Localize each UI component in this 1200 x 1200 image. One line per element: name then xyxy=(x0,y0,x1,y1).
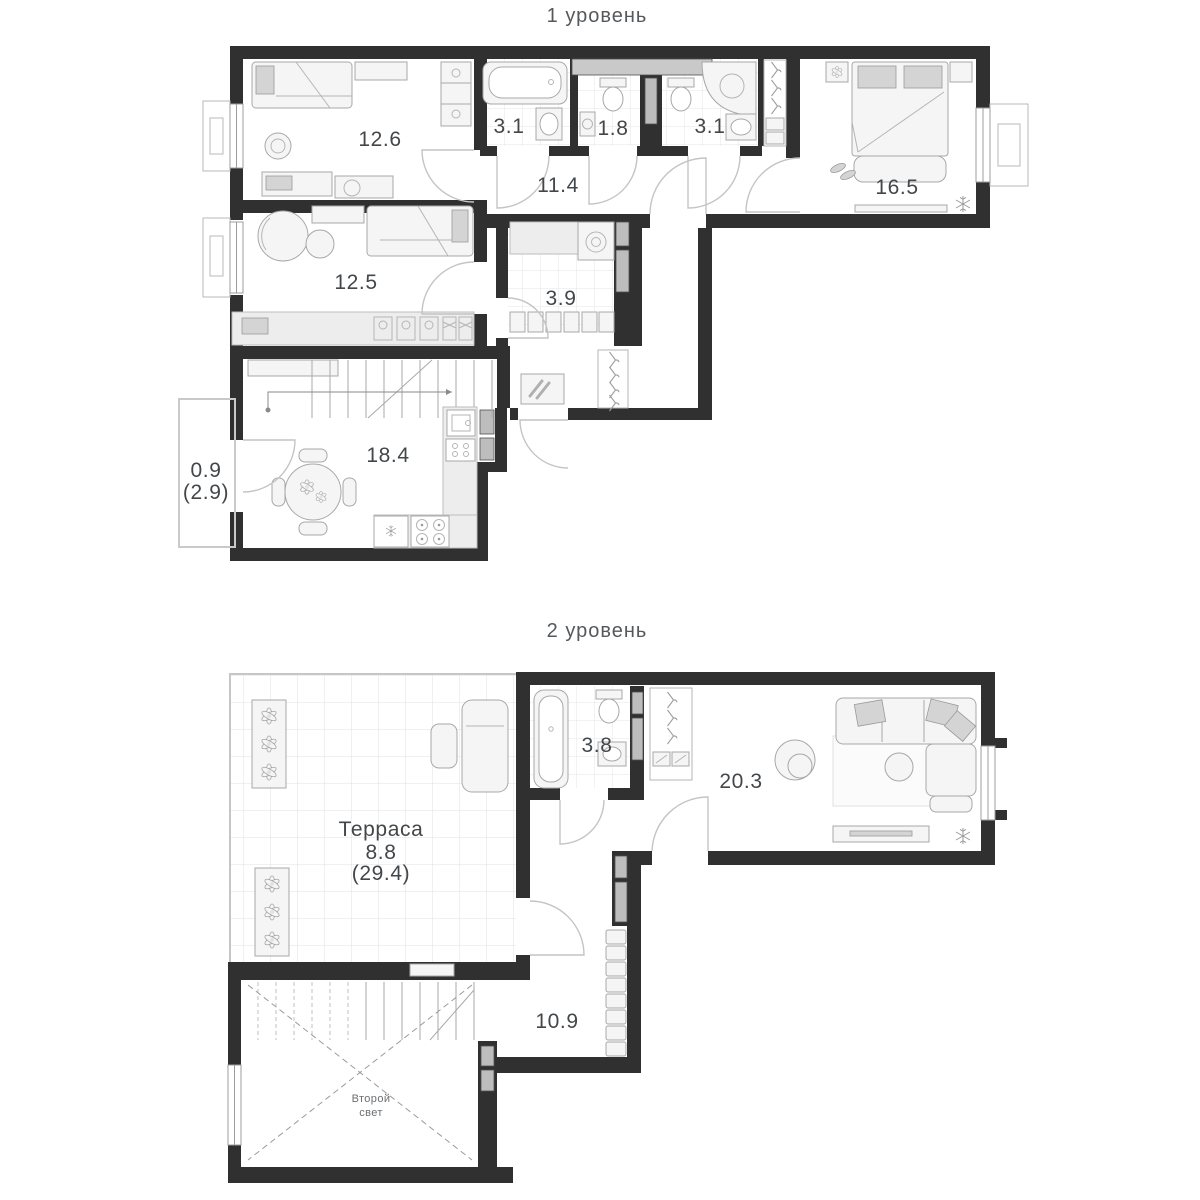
entry-closet xyxy=(764,60,786,146)
label-wc: 1.8 xyxy=(598,117,629,140)
floor-plan-page: 12.6 3.1 1.8 3.1 16.5 11.4 12.5 3.9 18.4… xyxy=(0,0,1200,1200)
kitchen-furniture xyxy=(272,407,477,548)
label-kitchen: 18.4 xyxy=(366,444,409,467)
label-terrace-total: (29.4) xyxy=(352,862,410,885)
label-bath-left: 3.1 xyxy=(494,115,525,138)
living-room-furniture xyxy=(775,698,976,844)
door-mat xyxy=(521,374,564,404)
label-living-room: 20.3 xyxy=(719,770,762,793)
level-2-plan: Терраса 8.8 (29.4) 3.8 20.3 10.9 Второй … xyxy=(228,672,1007,1183)
label-hall-2: 10.9 xyxy=(535,1010,578,1033)
label-bedroom: 16.5 xyxy=(875,176,918,199)
void-cross xyxy=(248,985,472,1160)
level-1-title: 1 уровень xyxy=(547,5,648,27)
label-room-12-6: 12.6 xyxy=(358,128,401,151)
label-room-12-5: 12.5 xyxy=(334,271,377,294)
label-balcony-area: 0.9 xyxy=(191,459,222,482)
label-hallway: 11.4 xyxy=(537,174,579,197)
label-terrace-area: 8.8 xyxy=(366,841,397,864)
label-balcony-total: (2.9) xyxy=(183,481,229,504)
label-laundry: 3.9 xyxy=(546,287,577,310)
stairs-level-2 xyxy=(258,982,474,1040)
hall-shelves xyxy=(606,930,626,1056)
label-bath-right: 3.1 xyxy=(695,115,726,138)
level-2-title: 2 уровень xyxy=(547,620,648,642)
floor-plan-svg: 12.6 3.1 1.8 3.1 16.5 11.4 12.5 3.9 18.4… xyxy=(0,0,1200,1200)
label-void-line1: Второй xyxy=(352,1093,391,1105)
living-room-closet xyxy=(650,688,692,780)
level-1-plan: 12.6 3.1 1.8 3.1 16.5 11.4 12.5 3.9 18.4… xyxy=(179,46,1028,561)
label-bathroom-2: 3.8 xyxy=(582,734,613,757)
label-void-line2: свет xyxy=(359,1107,383,1119)
label-terrace-name: Терраса xyxy=(339,818,424,841)
hall-wardrobe xyxy=(598,350,628,411)
